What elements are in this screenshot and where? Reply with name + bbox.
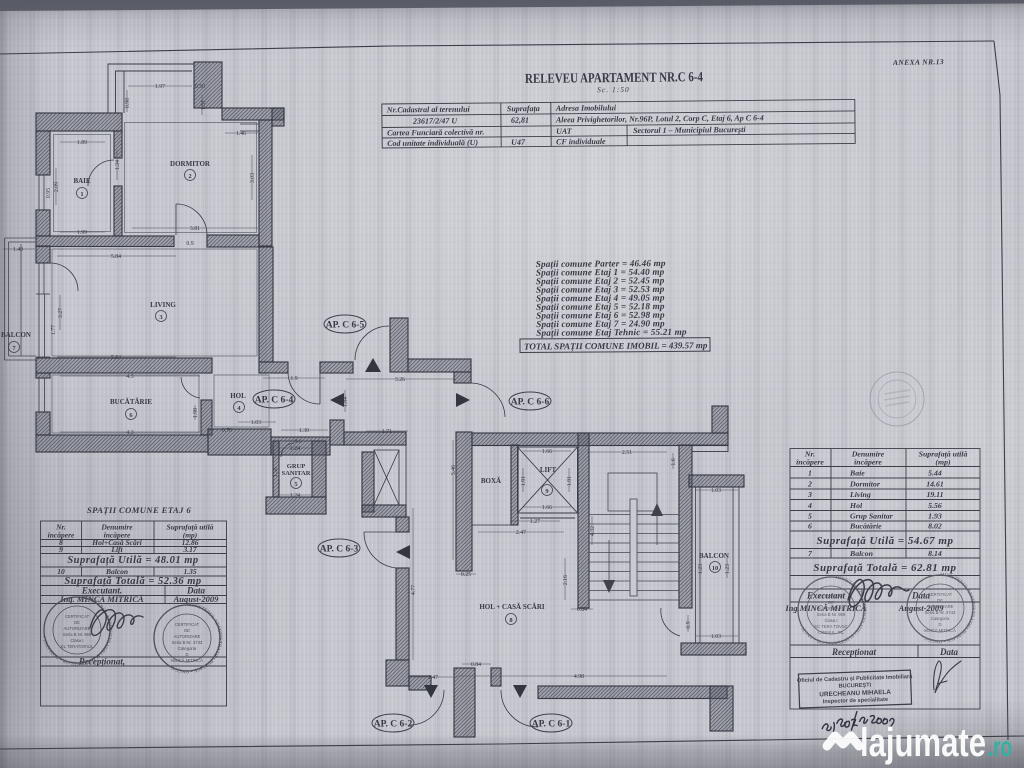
svg-text:10: 10	[57, 567, 65, 576]
svg-text:7: 7	[808, 549, 813, 558]
svg-text:AP. C 6-2: AP. C 6-2	[374, 720, 413, 730]
svg-text:2.16: 2.16	[563, 575, 569, 585]
svg-text:BAIE: BAIE	[73, 177, 90, 185]
svg-text:1.97: 1.97	[155, 84, 165, 90]
svg-text:Lift: Lift	[110, 545, 123, 554]
svg-text:Seria B Nr. 3743: Seria B Nr. 3743	[925, 610, 956, 615]
svg-text:1: 1	[80, 191, 83, 198]
svg-text:AUTORIZARE: AUTORIZARE	[927, 604, 954, 609]
svg-text:1.71: 1.71	[382, 429, 392, 435]
svg-text:8.14: 8.14	[928, 549, 942, 558]
svg-text:1.56: 1.56	[273, 467, 279, 477]
svg-text:4: 4	[807, 501, 812, 510]
svg-text:Seria B Nr. 969: Seria B Nr. 969	[63, 632, 92, 637]
svg-text:1.89: 1.89	[77, 140, 87, 146]
svg-text:5.84: 5.84	[111, 254, 121, 260]
svg-text:.ro: .ro	[988, 731, 1012, 762]
svg-text:UAT: UAT	[556, 127, 573, 136]
svg-text:1.23: 1.23	[725, 564, 731, 574]
svg-text:3: 3	[807, 490, 812, 499]
svg-text:4.3: 4.3	[126, 374, 133, 380]
svg-text:Suprafața: Suprafața	[507, 104, 540, 113]
svg-text:Dormitor: Dormitor	[849, 480, 881, 489]
svg-text:0.25: 0.25	[461, 572, 471, 578]
svg-text:1.77: 1.77	[51, 325, 57, 335]
svg-text:Seria B Nr. 969: Seria B Nr. 969	[817, 612, 846, 617]
svg-text:3.17: 3.17	[182, 545, 196, 554]
svg-text:încăpere: încăpere	[796, 458, 824, 467]
svg-text:AUTORIZARE: AUTORIZARE	[818, 606, 845, 611]
svg-text:TOTAL SPAȚII COMUNE IMOBIL = 4: TOTAL SPAȚII COMUNE IMOBIL = 439.57 mp	[524, 340, 708, 352]
svg-text:Baie: Baie	[849, 469, 865, 478]
svg-text:1.99: 1.99	[77, 230, 87, 236]
svg-text:0.95: 0.95	[46, 188, 52, 198]
svg-text:1.24: 1.24	[290, 446, 300, 452]
svg-text:3.27: 3.27	[58, 308, 64, 318]
svg-text:3.03: 3.03	[250, 173, 256, 183]
svg-text:14.61: 14.61	[926, 480, 944, 489]
svg-text:U47: U47	[511, 138, 526, 147]
svg-text:3: 3	[159, 314, 163, 321]
svg-text:2: 2	[807, 480, 812, 489]
svg-text:LIFT: LIFT	[540, 466, 557, 474]
svg-text:D: D	[185, 652, 188, 657]
svg-text:2: 2	[188, 173, 191, 180]
svg-text:0.9: 0.9	[186, 241, 193, 247]
svg-text:AP. C 6-6: AP. C 6-6	[511, 398, 550, 408]
svg-text:SPAȚII COMUNE ETAJ 6: SPAȚII COMUNE ETAJ 6	[87, 505, 191, 516]
svg-text:EL TERATORIUL: EL TERATORIUL	[61, 644, 94, 649]
svg-text:BALCON: BALCON	[699, 552, 729, 560]
svg-text:0.9: 0.9	[686, 621, 692, 628]
svg-text:ANEXA NR.13: ANEXA NR.13	[892, 57, 944, 67]
svg-text:1.47: 1.47	[428, 675, 438, 681]
svg-text:3.26: 3.26	[395, 377, 405, 383]
svg-text:Cod unitate individuală (U): Cod unitate individuală (U)	[387, 138, 478, 148]
svg-text:AP. C 6-4: AP. C 6-4	[255, 396, 294, 406]
svg-text:Balcon: Balcon	[105, 567, 128, 576]
svg-text:MINCĂ MITRICĂ: MINCĂ MITRICĂ	[171, 658, 203, 663]
svg-text:0.98: 0.98	[125, 98, 131, 108]
svg-text:7: 7	[12, 345, 16, 352]
svg-text:1.91: 1.91	[521, 476, 527, 486]
svg-text:1.66: 1.66	[542, 449, 552, 455]
svg-text:BOXĂ: BOXĂ	[481, 477, 501, 485]
svg-text:5: 5	[808, 512, 812, 521]
svg-text:5.46: 5.46	[451, 465, 457, 475]
svg-text:Seria B Nr. 3743: Seria B Nr. 3743	[172, 640, 203, 645]
svg-text:AUTORIZARE: AUTORIZARE	[64, 626, 91, 631]
svg-text:Adresa Imobilului: Adresa Imobilului	[555, 103, 617, 113]
svg-text:AP. C 6-5: AP. C 6-5	[326, 321, 365, 331]
svg-text:GRUP: GRUP	[287, 463, 305, 470]
svg-text:0.84: 0.84	[577, 607, 587, 613]
svg-text:1.98: 1.98	[193, 408, 199, 418]
svg-text:Sc. 1:50: Sc. 1:50	[597, 85, 630, 94]
svg-text:Clasa I: Clasa I	[824, 618, 837, 623]
svg-text:CONSUL. TIL: CONSUL. TIL	[818, 630, 844, 635]
svg-text:August-2009: August-2009	[173, 594, 220, 604]
svg-text:Spații comune Etaj Tehnic = 55: Spații comune Etaj Tehnic = 55.21 mp	[536, 327, 687, 338]
svg-text:Clasa I: Clasa I	[70, 638, 83, 643]
svg-text:4.98: 4.98	[574, 674, 584, 680]
svg-text:5.44: 5.44	[928, 469, 942, 478]
svg-text:Nr.Cadastral al terenului: Nr.Cadastral al terenului	[386, 105, 471, 115]
svg-text:4.77: 4.77	[411, 585, 417, 595]
svg-text:1: 1	[808, 469, 812, 478]
svg-text:D: D	[938, 622, 941, 627]
svg-text:1.6: 1.6	[671, 458, 677, 465]
svg-text:1.91: 1.91	[567, 476, 573, 486]
svg-text:Cartea Funciară colectivă nr.: Cartea Funciară colectivă nr.	[387, 128, 484, 138]
svg-text:Living: Living	[849, 490, 871, 499]
svg-text:2.51: 2.51	[622, 450, 632, 456]
svg-text:1.30: 1.30	[299, 428, 309, 434]
svg-text:1.03: 1.03	[711, 634, 721, 640]
svg-text:încăpere: încăpere	[854, 458, 882, 467]
svg-text:8: 8	[509, 617, 513, 624]
svg-text:LIVING: LIVING	[150, 301, 176, 309]
svg-text:6: 6	[129, 412, 133, 419]
svg-text:MINCĂ MITRICĂ: MINCĂ MITRICĂ	[924, 628, 956, 633]
svg-text:19.11: 19.11	[926, 490, 943, 499]
svg-text:4.32: 4.32	[590, 526, 596, 536]
svg-text:4: 4	[237, 405, 241, 412]
svg-text:SANITAR: SANITAR	[282, 470, 311, 477]
svg-text:CF individuale: CF individuale	[556, 137, 606, 146]
svg-text:5.56: 5.56	[928, 501, 942, 510]
svg-text:AUTORIZARE: AUTORIZARE	[174, 634, 201, 639]
svg-text:10: 10	[712, 565, 719, 572]
svg-text:4.3: 4.3	[126, 430, 133, 436]
svg-text:AP. C 6-1: AP. C 6-1	[532, 720, 571, 730]
svg-text:3.81: 3.81	[190, 226, 200, 232]
svg-text:1.03: 1.03	[711, 488, 721, 494]
svg-text:1.03: 1.03	[251, 420, 261, 426]
svg-text:0.6: 0.6	[294, 439, 301, 445]
svg-text:Ing. MINCĂ MITRICĂ: Ing. MINCĂ MITRICĂ	[59, 594, 144, 604]
svg-text:DE: DE	[74, 620, 80, 625]
svg-text:1.9: 1.9	[290, 376, 297, 382]
svg-text:Grup Sanitar: Grup Sanitar	[850, 512, 894, 521]
svg-text:CERTIFICAT: CERTIFICAT	[175, 622, 200, 627]
svg-text:1.35: 1.35	[183, 567, 196, 576]
svg-text:Categoria: Categoria	[178, 646, 197, 651]
svg-text:5.84: 5.84	[111, 355, 121, 361]
svg-text:EC TERA TOVSC: EC TERA TOVSC	[814, 624, 847, 629]
svg-text:1.23: 1.23	[698, 564, 704, 574]
svg-text:6: 6	[808, 522, 812, 531]
svg-text:1.66: 1.66	[542, 505, 552, 511]
svg-text:Bucătărie: Bucătărie	[849, 522, 882, 531]
svg-text:1.34: 1.34	[115, 160, 121, 170]
svg-text:CERTIFICAT: CERTIFICAT	[928, 592, 953, 597]
svg-text:Inspector de specialitate: Inspector de specialitate	[823, 697, 888, 705]
svg-text:Suprafață Utilă = 48.01 mp: Suprafață Utilă = 48.01 mp	[67, 555, 198, 566]
svg-text:1.46: 1.46	[236, 131, 246, 137]
svg-text:9: 9	[545, 488, 549, 495]
svg-text:DE: DE	[828, 600, 834, 605]
svg-text:2.47: 2.47	[516, 530, 526, 536]
svg-text:Suprafață Utilă = 54.67 mp: Suprafață Utilă = 54.67 mp	[817, 535, 954, 547]
svg-text:Categoria: Categoria	[931, 616, 950, 621]
svg-text:HOL + CASĂ SCĂRI: HOL + CASĂ SCĂRI	[479, 603, 545, 611]
svg-text:BUCUREȘTI: BUCUREȘTI	[838, 682, 871, 689]
svg-text:AP. C 6-3: AP. C 6-3	[320, 545, 359, 555]
svg-text:8.02: 8.02	[928, 522, 942, 531]
svg-text:0.84: 0.84	[471, 662, 481, 668]
svg-text:1.84: 1.84	[343, 397, 349, 407]
svg-text:0.70: 0.70	[222, 428, 232, 434]
svg-text:1.24: 1.24	[290, 493, 300, 499]
svg-text:(mp): (mp)	[935, 458, 951, 467]
svg-text:1.40: 1.40	[13, 247, 23, 253]
svg-text:9: 9	[59, 545, 63, 554]
svg-text:Recepționat: Recepționat	[831, 647, 876, 657]
svg-text:BUCĂTĂRIE: BUCĂTĂRIE	[110, 398, 152, 406]
svg-text:2.09: 2.09	[54, 182, 60, 192]
svg-text:CERTIFICAT: CERTIFICAT	[65, 614, 90, 619]
svg-text:Sectorul 1 – Municipiul Bucure: Sectorul 1 – Municipiul București	[633, 125, 746, 135]
svg-text:RELEVEU APARTAMENT NR.C 6-4: RELEVEU APARTAMENT NR.C 6-4	[525, 69, 703, 86]
svg-text:HOL: HOL	[230, 392, 246, 400]
svg-text:1.93: 1.93	[928, 512, 942, 521]
svg-text:DE: DE	[937, 598, 943, 603]
svg-text:CERTIFICAT: CERTIFICAT	[819, 594, 844, 599]
svg-text:62,81: 62,81	[511, 116, 529, 125]
svg-text:0.50: 0.50	[195, 84, 205, 90]
svg-text:BALCON: BALCON	[1, 331, 31, 339]
svg-text:23617/2/47 U: 23617/2/47 U	[412, 116, 459, 125]
svg-text:Hol: Hol	[849, 501, 863, 510]
svg-text:DORMITOR: DORMITOR	[170, 160, 211, 168]
svg-text:Data: Data	[939, 647, 959, 657]
svg-text:5: 5	[294, 481, 298, 488]
svg-text:1.27: 1.27	[530, 519, 540, 525]
svg-text:DE: DE	[184, 628, 190, 633]
svg-text:Aleea Privighetorilor, Nr.96P,: Aleea Privighetorilor, Nr.96P, Lotul 2, …	[555, 113, 764, 124]
svg-text:Suprafață Totală = 62.81 mp: Suprafață Totală = 62.81 mp	[813, 562, 956, 574]
svg-text:1.51: 1.51	[201, 100, 207, 110]
svg-text:lajumate: lajumate	[860, 721, 986, 765]
svg-text:Balcon: Balcon	[849, 549, 873, 558]
